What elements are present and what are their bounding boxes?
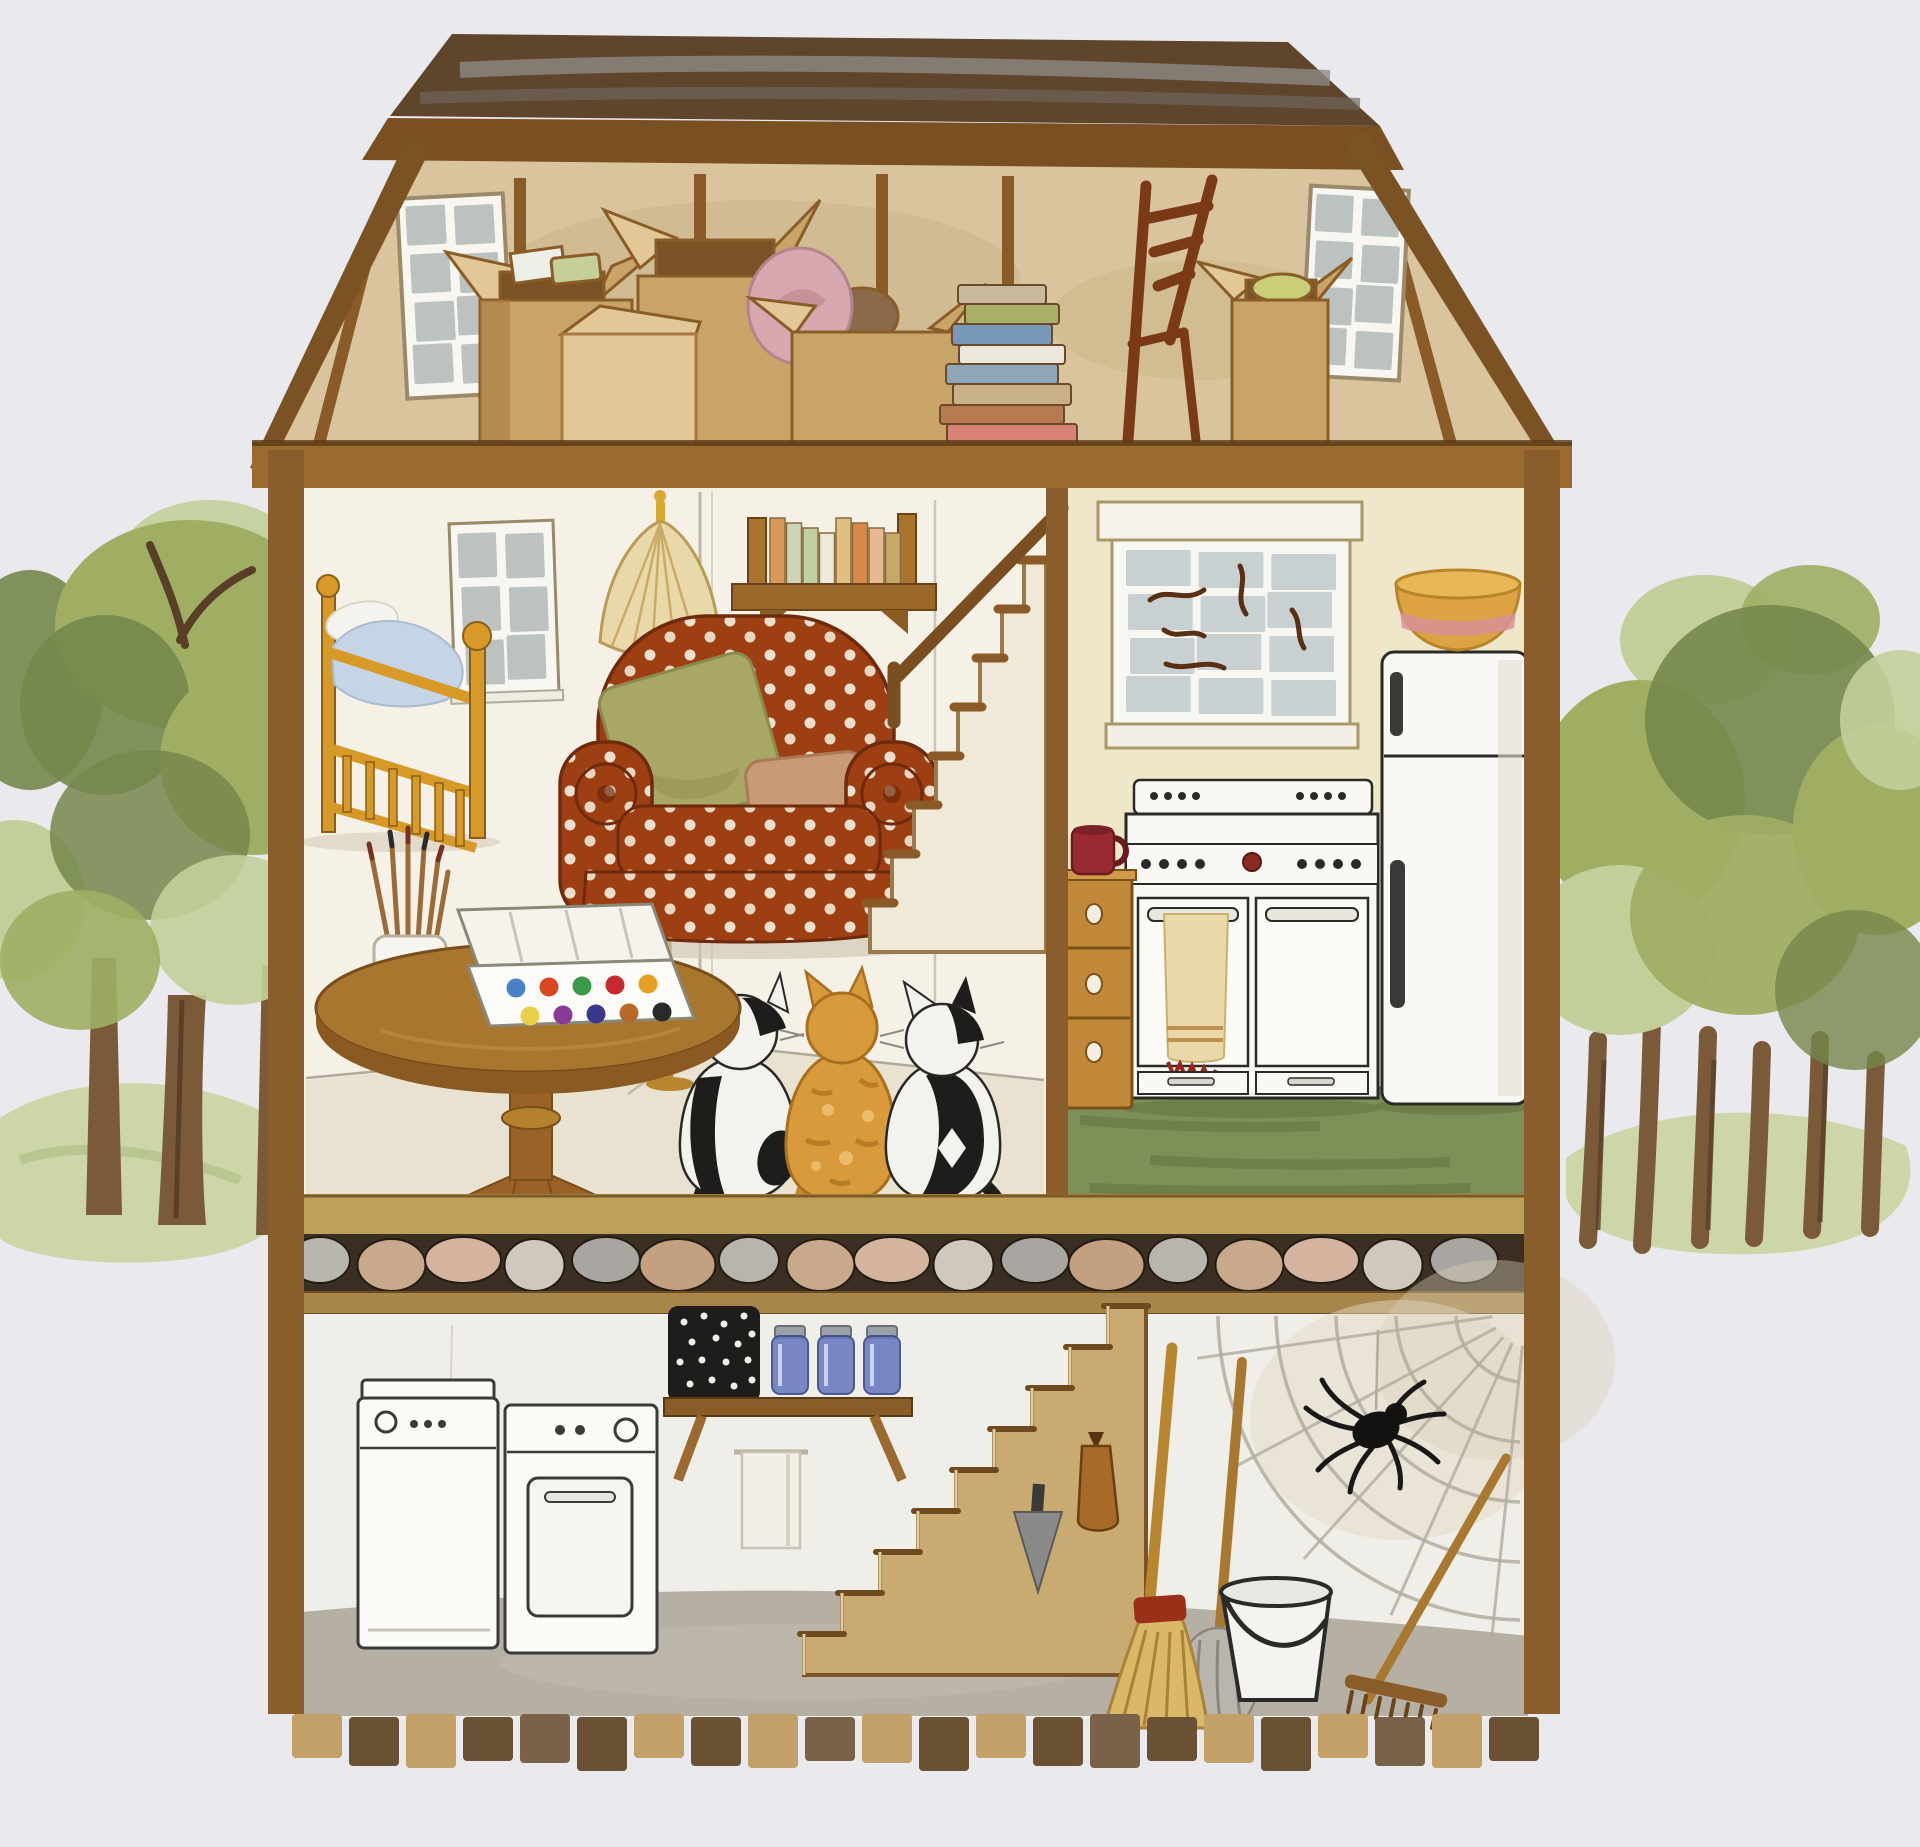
brick — [748, 1714, 798, 1768]
window-pane — [506, 634, 546, 680]
brick — [1375, 1717, 1425, 1766]
brick — [691, 1717, 741, 1766]
stone — [1001, 1237, 1069, 1283]
kitchen-divider-beam — [1046, 488, 1068, 1196]
window-pane — [1354, 331, 1393, 370]
window-pane — [1199, 678, 1264, 714]
shelf-board — [732, 584, 936, 610]
paintbox-lid — [458, 904, 672, 966]
window-pane — [1315, 194, 1354, 233]
brick — [406, 1714, 456, 1768]
stone — [1069, 1239, 1145, 1291]
stone — [572, 1237, 640, 1283]
shelf-board — [664, 1398, 912, 1416]
stacked-book — [952, 324, 1052, 345]
shelf-book — [803, 528, 818, 584]
floor-band — [288, 1194, 1540, 1234]
stones — [290, 1237, 1498, 1291]
washer — [358, 1380, 498, 1648]
paint-dot — [507, 979, 526, 998]
shelf-book — [770, 518, 785, 584]
paint-dot — [606, 976, 625, 995]
window-pane — [1201, 596, 1266, 632]
stove — [1122, 780, 1382, 1118]
box — [792, 332, 960, 446]
window-pane — [457, 532, 497, 578]
window-pane — [414, 301, 456, 342]
oven-door-right — [1256, 898, 1368, 1066]
brick — [634, 1714, 684, 1758]
stacked-book — [958, 285, 1046, 304]
shelf-book — [886, 533, 901, 584]
paint-dot — [639, 975, 658, 994]
fridge-handle — [1390, 860, 1405, 1008]
speckled-basket — [668, 1306, 760, 1402]
paint-dot — [620, 1004, 639, 1023]
brick — [520, 1714, 570, 1763]
brick — [1204, 1714, 1254, 1763]
brick — [805, 1717, 855, 1761]
window-pane — [1271, 680, 1336, 716]
window-pane — [1199, 552, 1264, 588]
window-pane — [505, 533, 545, 579]
brick — [349, 1717, 399, 1766]
window-pane — [1128, 594, 1193, 630]
paint-dot — [573, 977, 592, 996]
window-pane — [410, 252, 452, 293]
left-wall-beam — [268, 450, 304, 1714]
watercolor-dollhouse-painting — [0, 0, 1920, 1847]
window-pane — [509, 586, 549, 632]
stone — [1216, 1239, 1284, 1291]
painting-canvas — [0, 0, 1920, 1847]
bucket — [1221, 1578, 1331, 1700]
brick — [463, 1717, 513, 1761]
brick — [292, 1714, 342, 1758]
stone-foundation — [288, 1194, 1540, 1314]
brick — [862, 1714, 912, 1763]
watercolor-box — [458, 904, 694, 1026]
brick — [919, 1717, 969, 1771]
attic-floor-beam — [252, 442, 1572, 488]
paint-dot — [540, 978, 559, 997]
spider-head — [1385, 1403, 1407, 1425]
washer-body — [358, 1398, 498, 1648]
stone — [358, 1239, 426, 1291]
stone — [640, 1239, 716, 1291]
broom-wrap — [1133, 1594, 1187, 1624]
shelf-book — [820, 533, 835, 584]
paint-dot — [587, 1005, 606, 1024]
middle-floor — [300, 488, 1535, 1241]
blue-jars — [772, 1326, 900, 1394]
freezer-handle — [1390, 672, 1403, 736]
stone — [425, 1237, 501, 1283]
right-wall-beam — [1524, 450, 1560, 1714]
stone — [719, 1237, 779, 1283]
hanging-towel — [1164, 914, 1228, 1082]
brick — [1261, 1717, 1311, 1771]
basement — [302, 1260, 1615, 1732]
dryer-handle — [545, 1492, 615, 1502]
cat-head — [807, 993, 877, 1063]
window-pane — [454, 204, 496, 245]
brick — [577, 1717, 627, 1771]
stacked-book — [965, 304, 1059, 324]
shelf-book — [836, 518, 851, 584]
stacked-book — [959, 345, 1065, 364]
brick — [1147, 1717, 1197, 1761]
window-pane — [1271, 554, 1336, 590]
stone — [505, 1239, 565, 1291]
shelf-books — [770, 518, 901, 584]
brick — [1489, 1717, 1539, 1761]
window-pane — [1361, 245, 1400, 284]
window-pane — [1126, 676, 1191, 712]
stone — [1283, 1237, 1359, 1283]
brick — [1090, 1714, 1140, 1768]
dryer — [505, 1405, 657, 1653]
stone — [1363, 1239, 1423, 1291]
paint-dot — [521, 1007, 540, 1026]
brick — [1318, 1714, 1368, 1758]
stone — [787, 1239, 855, 1291]
window-pane — [405, 204, 447, 245]
stacked-book — [946, 364, 1058, 384]
hand-towel — [734, 1452, 808, 1548]
shelf-book — [787, 523, 802, 584]
paint-dot — [554, 1006, 573, 1025]
stone — [854, 1237, 930, 1283]
stacked-book — [940, 405, 1064, 424]
bucket-rim — [1221, 1578, 1331, 1606]
stone — [1148, 1237, 1208, 1283]
paint-dot — [653, 1003, 672, 1022]
box — [562, 334, 696, 446]
shelf-book — [869, 528, 884, 584]
window-pane — [1354, 285, 1393, 324]
stone — [934, 1239, 994, 1291]
brick — [1033, 1717, 1083, 1766]
window-pane — [1126, 550, 1191, 586]
brick — [976, 1714, 1026, 1758]
brick — [1432, 1714, 1482, 1768]
stacked-book — [953, 384, 1071, 405]
right-grass-mound — [1566, 1113, 1910, 1255]
shelf-book — [853, 523, 868, 584]
kitchen-window — [1098, 502, 1362, 748]
window-pane — [413, 343, 455, 384]
